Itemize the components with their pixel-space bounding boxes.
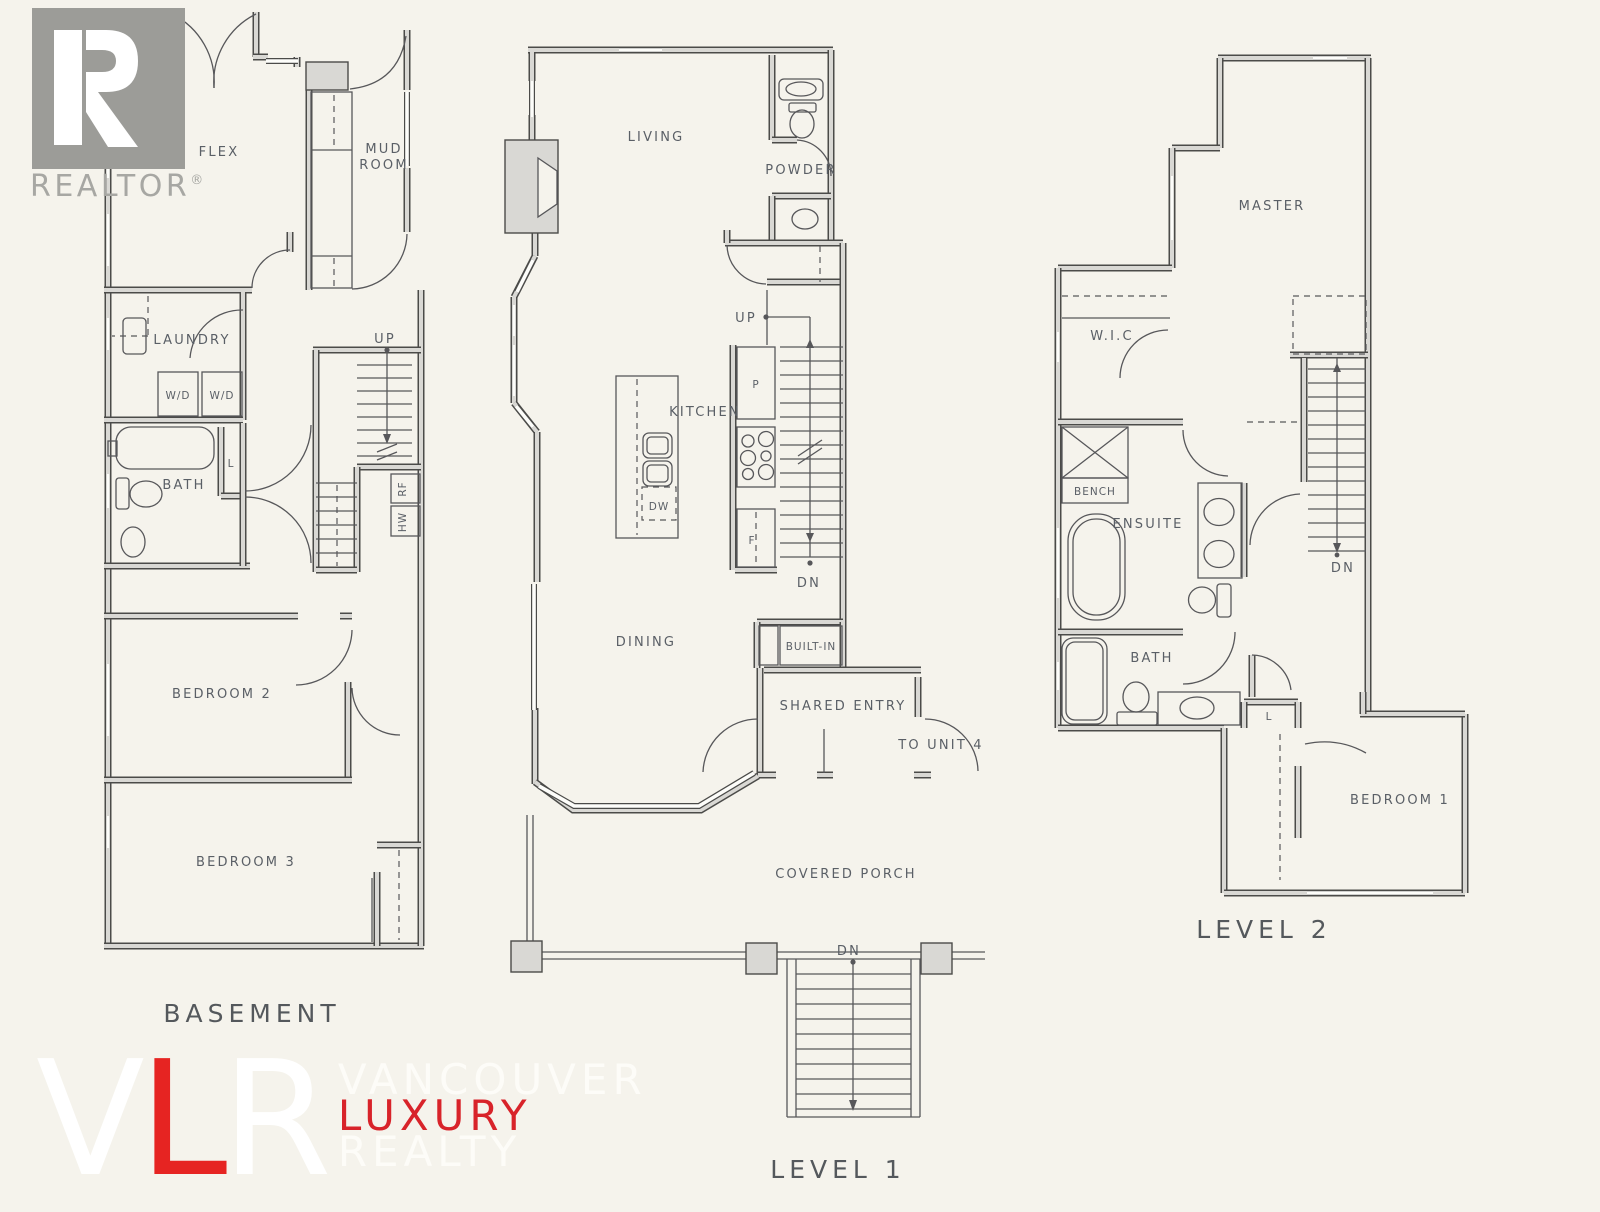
label-dn: DN <box>1331 561 1355 576</box>
label-linen: L <box>1266 711 1273 723</box>
room-label-mud: MUD <box>365 142 402 157</box>
label-up: UP <box>735 311 757 326</box>
plan-title-basement: BASEMENT <box>163 999 340 1028</box>
label-up: UP <box>374 332 396 347</box>
level2-walls <box>1058 58 1465 893</box>
label-wd2: W/D <box>209 390 234 402</box>
room-label-living: LIVING <box>628 130 685 145</box>
fireplace-icon <box>505 140 558 233</box>
wic-closet <box>1062 296 1170 318</box>
plan-title-level2: LEVEL 2 <box>1196 915 1331 944</box>
realtor-wordmark: REALTOR® <box>30 169 207 204</box>
mudroom-closet <box>311 92 352 288</box>
room-label-covered-porch: COVERED PORCH <box>775 867 917 882</box>
room-label-dining: DINING <box>616 635 676 650</box>
basement-doors <box>172 14 407 735</box>
floor-plan-sheet: { "branding": { "realtor": { "r": "R", "… <box>0 0 1600 1200</box>
floor-plan-image: FLEX MUD ROOM LAUNDRY W/D W/D BATH L UP … <box>0 0 1600 1200</box>
room-label-bedroom1: BEDROOM 1 <box>1350 793 1450 808</box>
level1-labels: LIVING POWDER UP KITCHEN P DW F DN DININ… <box>616 130 984 1184</box>
level2-labels: MASTER W.I.C BENCH ENSUITE DN BATH L BED… <box>1074 199 1450 944</box>
label-to-unit4: TO UNIT 4 <box>897 738 984 753</box>
porch-post <box>921 943 952 974</box>
laundry-counter <box>112 296 148 354</box>
basement-stairs <box>316 347 412 566</box>
level1-walls <box>514 50 931 810</box>
label-pantry: P <box>752 379 759 391</box>
level1-plan: LIVING POWDER UP KITCHEN P DW F DN DININ… <box>505 50 985 1184</box>
room-label-master: MASTER <box>1239 199 1306 214</box>
room-label-bath: BATH <box>162 478 205 493</box>
label-dw: DW <box>649 501 669 513</box>
realtor-r-icon <box>54 30 82 145</box>
room-label-kitchen: KITCHEN <box>669 405 741 420</box>
room-label-ensuite: ENSUITE <box>1112 517 1183 532</box>
label-builtin: BUILT-IN <box>786 641 837 653</box>
toilet-icon <box>116 478 162 509</box>
basin-icon <box>792 209 818 229</box>
porch-post <box>746 943 777 974</box>
label-hw: HW <box>397 512 409 532</box>
room-label-powder: POWDER <box>765 163 836 178</box>
label-wd1: W/D <box>165 390 190 402</box>
room-label-flex: FLEX <box>199 145 240 160</box>
room-label-bedroom2: BEDROOM 2 <box>172 687 272 702</box>
exterior-stairs <box>787 959 920 1117</box>
label-rf: RF <box>397 481 409 496</box>
label-porch-dn: DN <box>837 944 861 959</box>
vanity-double-sink <box>1198 483 1242 578</box>
sink-icon <box>121 527 145 557</box>
room-label-laundry: LAUNDRY <box>153 333 230 348</box>
basement-labels: FLEX MUD ROOM LAUNDRY W/D W/D BATH L UP … <box>153 142 409 1028</box>
label-linen: L <box>228 458 235 470</box>
bathtub-icon <box>1062 638 1107 724</box>
kitchen-island <box>616 376 678 538</box>
plan-title-level1: LEVEL 1 <box>770 1155 905 1184</box>
ensuite-toilet-icon <box>1189 584 1232 617</box>
label-bench: BENCH <box>1074 486 1116 498</box>
level2-stairs <box>1308 358 1366 557</box>
bathtub-icon <box>108 427 214 469</box>
label-shared-entry: SHARED ENTRY <box>780 699 907 714</box>
room-label-bedroom3: BEDROOM 3 <box>196 855 296 870</box>
realtor-logo: REALTOR® <box>30 8 207 204</box>
room-label-bath: BATH <box>1130 651 1173 666</box>
entry-threshold <box>306 62 348 90</box>
level2-plan: MASTER W.I.C BENCH ENSUITE DN BATH L BED… <box>1058 58 1465 944</box>
label-fridge: F <box>748 535 755 547</box>
covered-porch <box>511 815 985 974</box>
porch-post <box>511 941 542 972</box>
level2-windows <box>1058 58 1433 893</box>
powder-room-fixtures <box>779 79 823 229</box>
room-label-wic: W.I.C <box>1090 329 1134 344</box>
label-dn: DN <box>797 576 821 591</box>
toilet-icon <box>1123 682 1149 712</box>
room-label-room: ROOM <box>359 158 409 173</box>
